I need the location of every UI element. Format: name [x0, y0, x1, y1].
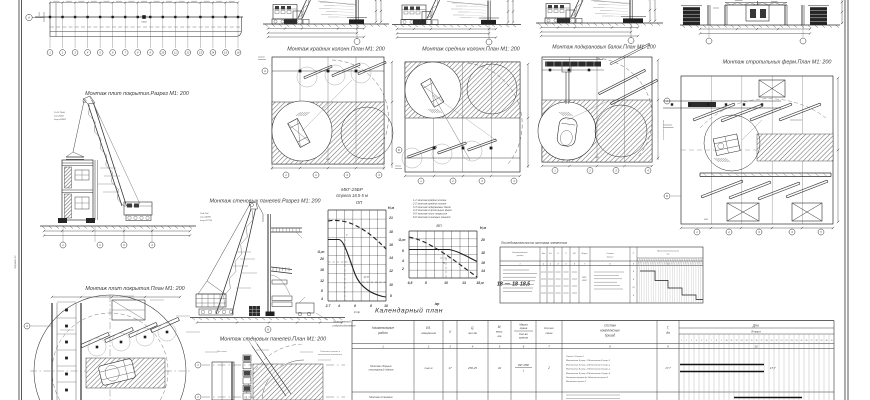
svg-text:А: А: [27, 16, 30, 20]
svg-text:Января: Января: [750, 330, 761, 334]
svg-text:Ед.: Ед.: [426, 326, 431, 330]
svg-text:6-6' монтаж стеновых панеле: 6-6' монтаж стеновых панелей: [413, 216, 451, 219]
svg-text:Б: Б: [666, 194, 668, 198]
svg-text:24: 24: [795, 340, 797, 342]
svg-text:Состав: Состав: [606, 253, 613, 255]
svg-text:Формат А1: Формат А1: [14, 255, 17, 269]
svg-text:Монтаж стеновых панелей.Разр: Монтаж стеновых панелей.Разрез М1: 200: [210, 198, 321, 205]
svg-text:Календарный план: Календарный план: [375, 307, 443, 315]
svg-text:Монтаж стропильных ферм.План: Монтаж стропильных ферм.План М1: 200: [723, 60, 832, 66]
svg-text:Б: Б: [267, 328, 269, 332]
svg-text:маш.: маш.: [496, 330, 503, 334]
svg-text:Продолжительность: Продолжительность: [657, 250, 680, 253]
svg-text:6: 6: [354, 304, 356, 308]
svg-text:3: 3: [691, 340, 692, 342]
svg-text:4: 4: [696, 340, 697, 342]
svg-text:13: 13: [740, 340, 742, 342]
svg-text:6,8: 6,8: [408, 281, 413, 285]
svg-text:Наименование: Наименование: [372, 326, 394, 330]
svg-text:12: 12: [389, 269, 393, 273]
svg-text:2: 2: [547, 366, 550, 370]
svg-text:30: 30: [825, 340, 827, 342]
svg-text:28: 28: [815, 340, 817, 342]
svg-text:Смена 1 Сме: Смена 1 Смена 2: [566, 356, 584, 358]
svg-text:9: 9: [721, 340, 722, 342]
svg-text:Последовательность монтажа э: Последовательность монтажа элементов: [501, 241, 567, 245]
svg-text:ОП: ОП: [356, 200, 363, 205]
svg-text:12: 12: [735, 340, 737, 342]
svg-text:31: 31: [830, 340, 832, 342]
svg-text:lстр=18000: lстр=18000: [54, 119, 67, 121]
svg-text:Машинист крана-1: Машинист крана-1: [566, 381, 587, 383]
svg-text:17,8: 17,8: [363, 275, 369, 279]
svg-text:17,7: 17,7: [770, 366, 776, 370]
svg-text:Т,: Т,: [667, 326, 670, 330]
svg-text:Монтажник 5 разр.-1 Монтажник: Монтажник 5 разр.-1 Монтажник 5 разр.-1: [566, 364, 611, 366]
svg-text:Монтаж средних колонн.План: Монтаж средних колонн.План М1: 200: [422, 47, 520, 53]
svg-text:10: 10: [389, 283, 393, 287]
svg-text:кранов: кранов: [519, 336, 529, 340]
svg-text:чел-дн: чел-дн: [468, 331, 477, 335]
svg-text:Наименование: Наименование: [512, 252, 528, 254]
svg-text:7: 7: [711, 340, 712, 342]
svg-text:16: 16: [481, 261, 485, 265]
svg-text:2: 2: [427, 345, 430, 349]
svg-text:МКГ-25БР: МКГ-25БР: [341, 187, 364, 192]
svg-text:стрела 18,5-5 м: стрела 18,5-5 м: [336, 193, 368, 198]
svg-text:15: 15: [750, 340, 752, 342]
svg-text:Монтаж плит покрытия.План М: Монтаж плит покрытия.План М1: 200: [85, 286, 184, 292]
svg-text:8: 8: [716, 340, 717, 342]
svg-text:5: 5: [701, 340, 702, 342]
svg-text:работ: работ: [377, 331, 388, 335]
svg-text:1: 1: [681, 340, 682, 342]
svg-text:G,т: G,т: [318, 250, 326, 254]
svg-text:18,м: 18,м: [476, 281, 484, 285]
svg-text:26: 26: [805, 340, 807, 342]
svg-text:Lкр=14000: Lкр=14000: [200, 216, 212, 219]
svg-text:14: 14: [745, 340, 747, 342]
svg-text:13: 13: [462, 281, 466, 285]
svg-text:17,7: 17,7: [665, 366, 671, 370]
svg-text:комплексных: комплексных: [600, 329, 620, 333]
svg-text:работ: работ: [516, 255, 524, 257]
svg-text:25БР: 25БР: [581, 280, 588, 282]
svg-text:монтажном положении: монтажном положении: [318, 354, 343, 356]
svg-text:Монтажник 6 разр.-1 Монтажник: Монтажник 6 разр.-1 Монтажник 6 разр.-1: [566, 360, 611, 362]
svg-text:измерения: измерения: [421, 331, 436, 335]
svg-text:14: 14: [389, 256, 393, 260]
svg-text:21: 21: [388, 216, 393, 220]
svg-text:8: 8: [321, 289, 323, 293]
svg-text:lстр: lстр: [354, 310, 360, 314]
svg-text:P=12,78кН: P=12,78кН: [54, 112, 65, 114]
svg-text:бригад: бригад: [607, 256, 614, 259]
svg-text:А: А: [25, 324, 28, 328]
svg-text:А: А: [263, 69, 266, 73]
svg-text:29: 29: [820, 340, 822, 342]
svg-text:6000: 6000: [39, 12, 41, 16]
svg-text:конструкций здания: конструкций здания: [369, 368, 394, 372]
svg-text:6: 6: [402, 249, 404, 253]
svg-text:20: 20: [480, 238, 485, 242]
svg-text:4: 4: [320, 297, 323, 301]
svg-text:10: 10: [444, 281, 448, 285]
svg-text:Кол-во: Кол-во: [544, 326, 554, 330]
svg-text:ВП: ВП: [436, 224, 442, 228]
svg-text:6: 6: [706, 340, 707, 342]
svg-text:Дни: Дни: [752, 323, 759, 327]
svg-text:Марка: Марка: [582, 253, 589, 255]
svg-text:Lкр=5000: Lкр=5000: [54, 116, 64, 118]
svg-text:гидроподъемник: гидроподъемник: [332, 324, 356, 328]
svg-text:27: 27: [810, 340, 812, 342]
svg-text:4: 4: [337, 304, 340, 308]
svg-text:32: 32: [498, 366, 502, 370]
svg-text:Н,м: Н,м: [480, 226, 487, 230]
svg-text:4: 4: [401, 259, 404, 263]
svg-text:P=4,7кН: P=4,7кН: [200, 212, 209, 215]
svg-text:Н,м: Н,м: [388, 206, 395, 210]
svg-text:бригад: бригад: [605, 334, 616, 338]
svg-text:Электросварщик 5р.-Машинист кр: Электросварщик 5р.-Машинист крана-1: [566, 377, 609, 379]
svg-text:Монтажник 3 разр.-2 Монтажник: Монтажник 3 разр.-2 Монтажник 3 разр.-2: [566, 373, 611, 375]
svg-text:Q,: Q,: [471, 326, 474, 330]
svg-text:М,: М,: [498, 325, 502, 329]
svg-text:18: 18: [389, 230, 393, 234]
svg-text:-см.: -см.: [497, 334, 503, 338]
svg-text:16: 16: [755, 340, 757, 342]
svg-text:16: 16: [320, 268, 324, 272]
svg-text:21: 21: [780, 340, 782, 342]
svg-text:22: 22: [785, 340, 787, 342]
svg-text:18: 18: [765, 340, 767, 342]
svg-text:МКГ-: МКГ-: [582, 277, 587, 279]
svg-text:тыс.м: тыс.м: [425, 367, 433, 370]
svg-text:А: А: [665, 99, 668, 103]
svg-text:продольная проходка: продольная проходка: [662, 119, 665, 140]
svg-text:8: 8: [370, 304, 372, 308]
svg-text:20: 20: [775, 340, 777, 342]
svg-text:18: 18: [481, 251, 485, 255]
svg-text:Монтаж стеновых панелей.План: Монтаж стеновых панелей.План М1: 200: [220, 336, 326, 343]
svg-text:Б: Б: [398, 148, 400, 152]
svg-text:8: 8: [390, 294, 392, 298]
svg-text:20: 20: [319, 257, 324, 261]
svg-text:lкр: lкр: [435, 302, 440, 306]
svg-text:G,т: G,т: [399, 238, 407, 242]
svg-text:10: 10: [754, 345, 758, 349]
svg-text:23: 23: [790, 340, 792, 342]
svg-text:14: 14: [481, 269, 485, 273]
svg-text:12: 12: [320, 279, 324, 283]
svg-text:крана: крана: [520, 326, 528, 330]
svg-text:14000: 14000: [141, 21, 147, 24]
svg-text:19: 19: [770, 340, 772, 342]
svg-text:МКГ-25БР: МКГ-25БР: [518, 364, 530, 367]
svg-text:Монтаж стеновых: Монтаж стеновых: [369, 395, 393, 399]
svg-text:Ось движ.: Ось движ.: [217, 350, 228, 353]
svg-text:дн: дн: [666, 331, 670, 335]
svg-text:Монтаж плит покрытия.Разрез: Монтаж плит покрытия.Разрез М1: 200: [85, 91, 189, 97]
svg-text:10: 10: [725, 340, 727, 342]
svg-text:25: 25: [800, 340, 802, 342]
svg-text:Монтаж сборных: Монтаж сборных: [370, 364, 392, 368]
svg-text:256,25: 256,25: [467, 366, 478, 370]
svg-text:Состав: Состав: [604, 324, 616, 328]
svg-text:16: 16: [389, 243, 393, 247]
svg-text:8: 8: [425, 281, 427, 285]
svg-text:lстр=17750: lстр=17750: [200, 220, 213, 222]
svg-text:Монтажник 4 разр.-1 Монтажник: Монтажник 4 разр.-1 Монтажник 4 разр.-1: [566, 368, 611, 371]
svg-text:11: 11: [731, 340, 733, 342]
svg-text:Стеновая панель в: Стеновая панель в: [320, 351, 341, 353]
svg-text:2: 2: [401, 267, 404, 271]
svg-text:17: 17: [760, 340, 762, 342]
svg-text:17: 17: [448, 366, 452, 370]
svg-text:смен: смен: [546, 331, 553, 335]
svg-text:Монтаж крайних колонн.План: Монтаж крайних колонн.План М1: 200: [287, 46, 385, 53]
svg-text:2: 2: [686, 340, 687, 342]
